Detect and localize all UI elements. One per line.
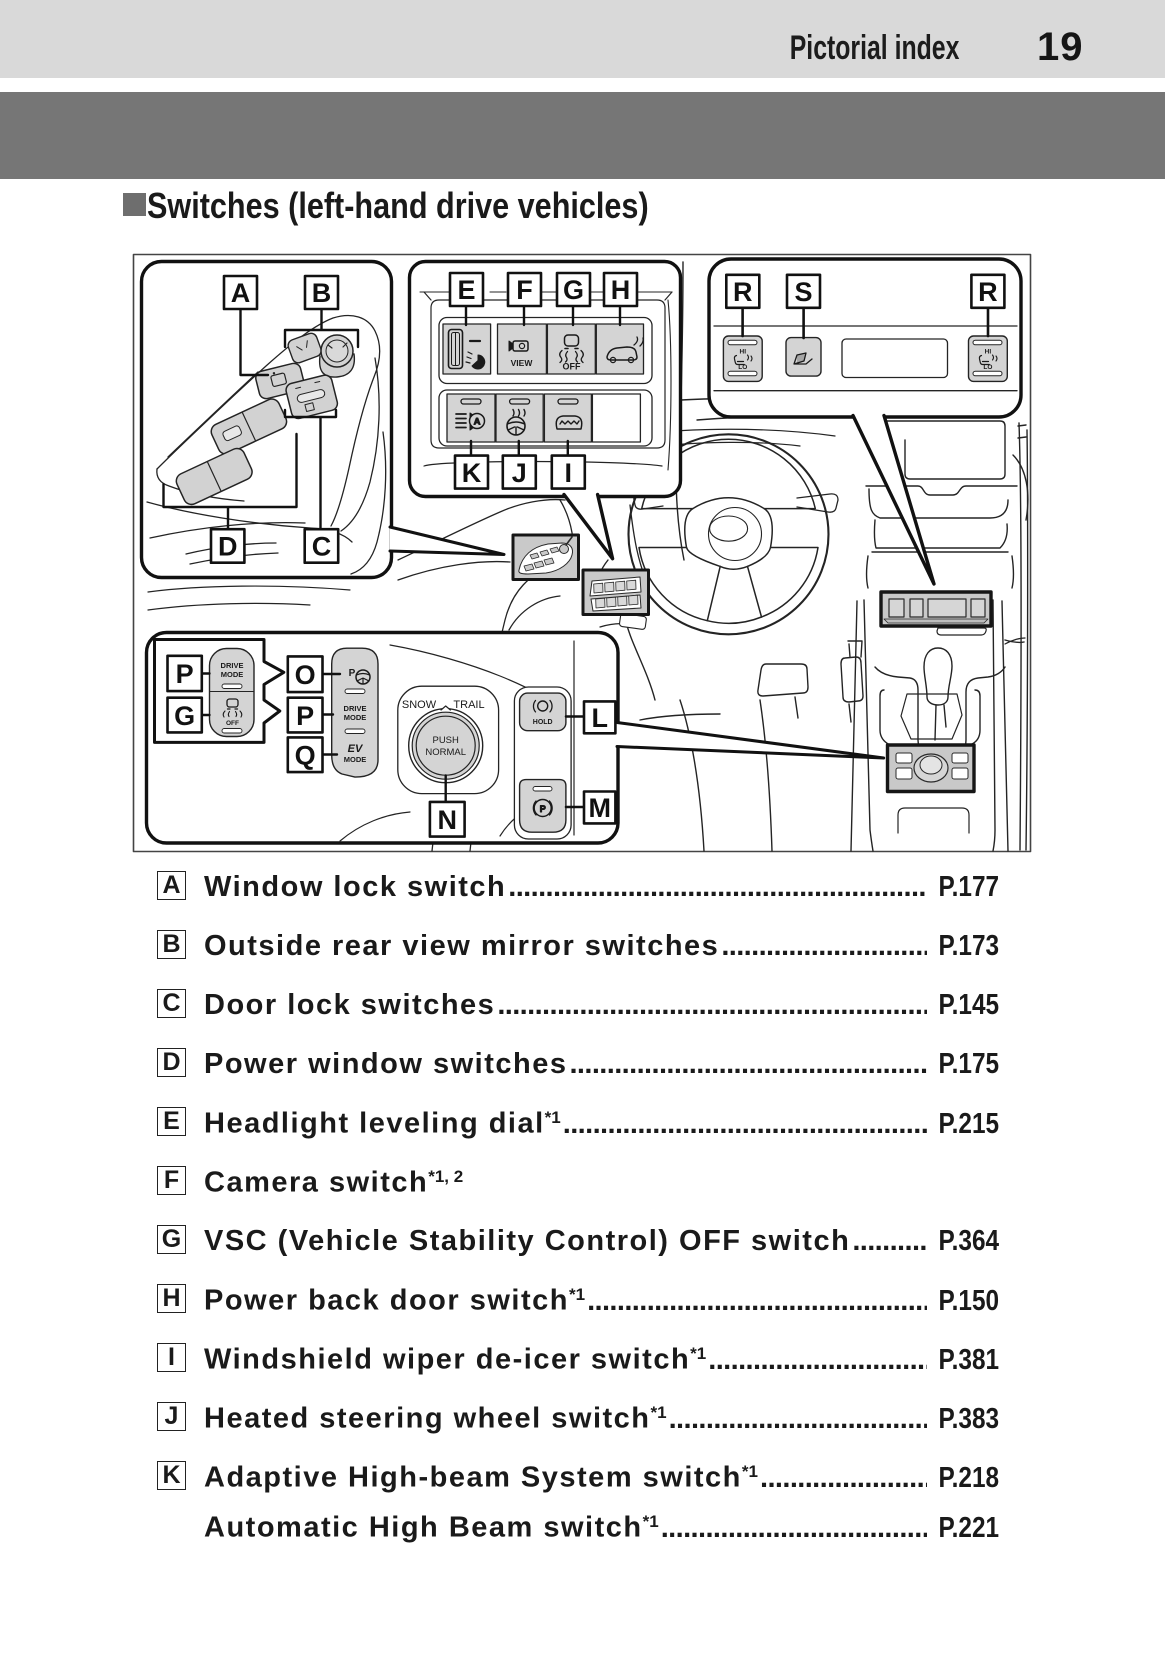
svg-text:D: D [218, 532, 238, 562]
svg-text:HI: HI [985, 349, 992, 356]
svg-text:N: N [438, 805, 458, 835]
svg-text:P: P [540, 804, 546, 814]
svg-text:P: P [349, 668, 356, 679]
svg-text:MODE: MODE [344, 755, 367, 764]
svg-text:P: P [176, 659, 194, 689]
svg-text:A: A [474, 417, 481, 428]
svg-text:G: G [174, 701, 195, 731]
svg-text:OFF: OFF [563, 362, 581, 372]
svg-text:J: J [512, 458, 527, 488]
svg-text:L: L [591, 703, 608, 733]
svg-text:EV: EV [348, 743, 364, 755]
svg-text:O: O [295, 660, 316, 690]
svg-text:R: R [978, 277, 998, 307]
svg-text:F: F [516, 275, 533, 305]
svg-text:OFF: OFF [226, 720, 239, 727]
svg-text:H: H [611, 275, 631, 305]
svg-text:MODE: MODE [221, 670, 244, 679]
svg-text:DRIVE: DRIVE [221, 661, 244, 670]
svg-text:Q: Q [295, 741, 316, 771]
svg-text:K: K [462, 458, 482, 488]
svg-text:E: E [457, 275, 475, 305]
svg-text:TRAIL: TRAIL [453, 699, 484, 711]
svg-text:MODE: MODE [344, 713, 367, 722]
svg-text:VIEW: VIEW [511, 358, 534, 368]
svg-text:HOLD: HOLD [533, 719, 553, 726]
svg-text:P: P [296, 701, 314, 731]
svg-text:C: C [312, 532, 332, 562]
svg-text:M: M [588, 793, 611, 823]
svg-text:S: S [794, 277, 812, 307]
svg-text:HI: HI [740, 349, 747, 356]
svg-text:G: G [563, 275, 584, 305]
svg-text:NORMAL: NORMAL [425, 747, 466, 758]
svg-text:SNOW: SNOW [402, 699, 437, 711]
svg-text:PUSH: PUSH [432, 735, 459, 746]
svg-text:DRIVE: DRIVE [344, 704, 367, 713]
svg-text:I: I [565, 458, 573, 488]
svg-text:B: B [312, 278, 332, 308]
svg-text:A: A [231, 278, 251, 308]
svg-text:R: R [733, 277, 753, 307]
